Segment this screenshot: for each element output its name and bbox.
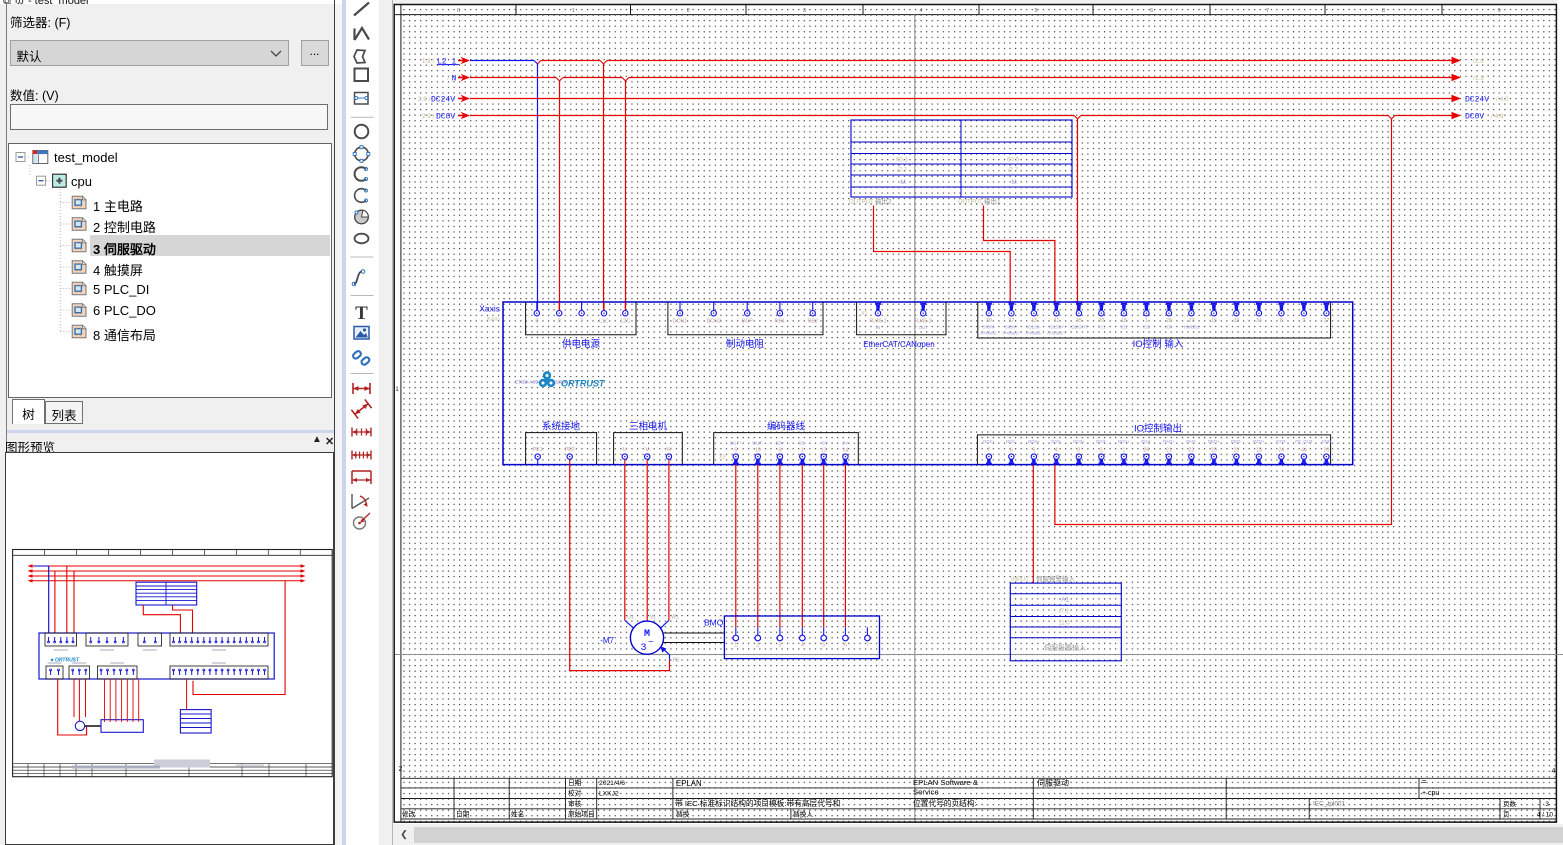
svg-text:3: 3 bbox=[640, 643, 646, 654]
svg-text:伺服报警输入: 伺服报警输入 bbox=[1044, 643, 1086, 652]
svg-text:L2C: L2C bbox=[620, 319, 630, 325]
svg-text:输出1: 输出1 bbox=[984, 197, 1001, 206]
svg-text:W1: W1 bbox=[671, 614, 679, 620]
svg-text:24: 24 bbox=[1278, 447, 1284, 453]
svg-text:2.9 /: 2.9 / bbox=[422, 113, 435, 120]
svg-text:9: 9 bbox=[558, 319, 561, 325]
svg-text:页: 页 bbox=[1503, 811, 1510, 819]
svg-text:/Probe1-: /Probe1- bbox=[1025, 331, 1042, 336]
svg-text:1: 1 bbox=[801, 447, 804, 453]
svg-text:DCN1: DCN1 bbox=[673, 319, 687, 325]
svg-text:U: U bbox=[623, 447, 627, 453]
svg-text:OUTPUT: OUTPUT bbox=[849, 200, 874, 206]
svg-text:OUT: OUT bbox=[918, 325, 928, 330]
svg-text:日期: 日期 bbox=[568, 779, 582, 787]
svg-text:三相电机: 三相电机 bbox=[629, 421, 668, 433]
svg-text:PE1: PE1 bbox=[533, 447, 543, 453]
svg-text:26: 26 bbox=[1143, 447, 1149, 453]
svg-text:原始项目: 原始项目 bbox=[568, 809, 595, 818]
svg-text:HWBB1: HWBB1 bbox=[1184, 325, 1200, 330]
svg-text:/1.9: /1.9 bbox=[1473, 58, 1484, 65]
svg-text:伺服驱动: 伺服驱动 bbox=[1037, 778, 1069, 788]
svg-text:/7.2: /7.2 bbox=[1059, 609, 1070, 615]
svg-text:5: 5 bbox=[734, 447, 737, 453]
svg-text:6: 6 bbox=[1150, 8, 1153, 14]
svg-text:Xaxis: Xaxis bbox=[487, 317, 501, 323]
svg-text:X3: X3 bbox=[719, 455, 726, 461]
svg-text:8: 8 bbox=[1280, 318, 1283, 324]
svg-text:13: 13 bbox=[821, 447, 827, 453]
svg-text:-M: -M bbox=[898, 179, 906, 186]
svg-text:9: 9 bbox=[1498, 8, 1501, 14]
svg-text:1: 1 bbox=[734, 643, 737, 649]
svg-text:60.1: 60.1 bbox=[896, 157, 908, 163]
svg-text:7: 7 bbox=[580, 319, 583, 325]
svg-text:IO2: IO2 bbox=[1120, 325, 1128, 330]
svg-text:3: 3 bbox=[1545, 801, 1549, 808]
svg-text:/7.7: /7.7 bbox=[897, 168, 908, 174]
svg-text:IOLS6-: IOLS6- bbox=[1027, 325, 1041, 330]
svg-text:27: 27 bbox=[1188, 318, 1194, 324]
svg-text:LXKJ2: LXKJ2 bbox=[599, 790, 619, 797]
svg-text:制动电阻: 制动电阻 bbox=[726, 338, 765, 350]
svg-text:35: 35 bbox=[1076, 318, 1082, 324]
svg-text:RB2: RB2 bbox=[808, 319, 818, 325]
svg-text:SION-: SION- bbox=[983, 325, 996, 330]
svg-text:4: 4 bbox=[919, 8, 922, 14]
svg-text:~: ~ bbox=[648, 638, 653, 648]
svg-text:IO3: IO3 bbox=[1143, 325, 1151, 330]
svg-text:6: 6 bbox=[1010, 447, 1013, 453]
svg-text:25: 25 bbox=[1211, 447, 1217, 453]
svg-text:IN: IN bbox=[876, 325, 881, 330]
svg-text:0: 0 bbox=[457, 8, 460, 14]
svg-text:RJ45-2: RJ45-2 bbox=[915, 319, 932, 325]
svg-text:8: 8 bbox=[1382, 8, 1385, 14]
svg-text:审核: 审核 bbox=[568, 799, 582, 808]
svg-text:34: 34 bbox=[1256, 318, 1262, 324]
svg-text:OUT+: OUT+ bbox=[730, 441, 743, 446]
svg-text:PBO+: PBO+ bbox=[1208, 439, 1220, 444]
svg-text:DO3+: DO3+ bbox=[1073, 439, 1085, 444]
svg-text:EPLAN Software &: EPLAN Software & bbox=[913, 778, 978, 787]
svg-text:14: 14 bbox=[842, 447, 848, 453]
svg-text:/ 4.8: / 4.8 bbox=[1491, 113, 1504, 120]
svg-text:-M: -M bbox=[1009, 179, 1017, 186]
svg-text:7: 7 bbox=[987, 447, 990, 453]
svg-text:替换: 替换 bbox=[676, 809, 690, 818]
svg-text:Service: Service bbox=[913, 788, 939, 797]
svg-text:/: / bbox=[447, 75, 449, 82]
svg-text:9: 9 bbox=[1302, 318, 1305, 324]
svg-text:7: 7 bbox=[866, 643, 869, 649]
svg-text:X1: X1 bbox=[861, 311, 868, 317]
svg-text:13: 13 bbox=[1256, 447, 1262, 453]
svg-text:IOLS6+: IOLS6+ bbox=[1049, 325, 1064, 330]
svg-text:EPLAN: EPLAN bbox=[676, 779, 702, 788]
svg-text:2021/4/6: 2021/4/6 bbox=[599, 780, 625, 787]
svg-text:23: 23 bbox=[1233, 447, 1239, 453]
svg-text:RJ45-1: RJ45-1 bbox=[869, 319, 886, 325]
svg-text:29: 29 bbox=[1323, 447, 1329, 453]
svg-text:8: 8 bbox=[535, 319, 538, 325]
svg-text:1: 1 bbox=[572, 8, 575, 14]
svg-text:INPUT: INPUT bbox=[1011, 577, 1029, 583]
svg-text:3: 3 bbox=[1077, 447, 1080, 453]
svg-text:供电电源: 供电电源 bbox=[562, 338, 601, 350]
svg-text:=: = bbox=[1422, 777, 1427, 786]
svg-text:PBO-: PBO- bbox=[1231, 439, 1242, 444]
svg-text:RB1: RB1 bbox=[775, 319, 785, 325]
svg-text:SD-: SD- bbox=[798, 441, 806, 446]
svg-text:60.0: 60.0 bbox=[1007, 157, 1019, 163]
svg-text:N: N bbox=[452, 75, 457, 84]
svg-text:5: 5 bbox=[822, 643, 825, 649]
svg-text:OUTPUT: OUTPUT bbox=[958, 200, 983, 206]
svg-text:/7.7: /7.7 bbox=[1008, 168, 1019, 174]
svg-text:SION+: SION+ bbox=[1005, 325, 1019, 330]
svg-text:U1: U1 bbox=[627, 614, 634, 620]
svg-text:4: 4 bbox=[1552, 768, 1556, 775]
svg-text:修改: 修改 bbox=[402, 809, 416, 818]
svg-text:2: 2 bbox=[399, 766, 403, 773]
svg-text:PZO+: PZO+ bbox=[1253, 439, 1265, 444]
svg-text:姓名: 姓名 bbox=[511, 809, 524, 818]
svg-text:页数: 页数 bbox=[1503, 799, 1517, 808]
svg-text:1: 1 bbox=[1145, 318, 1148, 324]
svg-text:22: 22 bbox=[1188, 447, 1194, 453]
svg-text:5: 5 bbox=[1032, 447, 1035, 453]
svg-text:SD+: SD+ bbox=[775, 441, 784, 446]
svg-text:V1: V1 bbox=[650, 614, 656, 620]
svg-text:17: 17 bbox=[1323, 318, 1329, 324]
svg-text:20: 20 bbox=[1098, 318, 1104, 324]
svg-text:替换人: 替换人 bbox=[793, 809, 813, 818]
svg-text:PAO+: PAO+ bbox=[1163, 439, 1175, 444]
svg-text:伺服报警输入: 伺服报警输入 bbox=[1036, 574, 1076, 583]
svg-text:IO4: IO4 bbox=[1165, 325, 1173, 330]
svg-text:/Probe1+: /Probe1+ bbox=[1047, 331, 1065, 336]
svg-text:Xaxis: Xaxis bbox=[479, 304, 500, 314]
svg-text:DO2-: DO2- bbox=[1051, 439, 1062, 444]
svg-text:4: 4 bbox=[801, 643, 804, 649]
svg-text:PAO-: PAO- bbox=[1186, 439, 1197, 444]
svg-text:PZO-: PZO- bbox=[1276, 439, 1287, 444]
svg-text:DCN2: DCN2 bbox=[706, 319, 720, 325]
svg-text:位置代号的页结构:: 位置代号的页结构: bbox=[913, 798, 977, 808]
svg-text:PZ_OUT: PZ_OUT bbox=[1295, 439, 1313, 444]
svg-text:2: 2 bbox=[756, 643, 759, 649]
svg-text:日期: 日期 bbox=[456, 810, 470, 818]
svg-text:DO1-: DO1- bbox=[1006, 439, 1017, 444]
svg-text:IOLIGHT: IOLIGHT bbox=[1070, 325, 1088, 330]
svg-text:3: 3 bbox=[778, 643, 781, 649]
svg-text:28: 28 bbox=[1166, 318, 1172, 324]
svg-text:15: 15 bbox=[1211, 318, 1217, 324]
svg-text:2.9 /: 2.9 / bbox=[418, 96, 431, 103]
svg-text:41: 41 bbox=[1053, 318, 1059, 324]
svg-text:L1C: L1C bbox=[599, 319, 609, 325]
svg-text:DO2+: DO2+ bbox=[1028, 439, 1040, 444]
svg-text:39: 39 bbox=[986, 318, 992, 324]
svg-text:6: 6 bbox=[844, 643, 847, 649]
svg-text:-M7: -M7 bbox=[600, 636, 614, 645]
svg-text:IO控制输出: IO控制输出 bbox=[1134, 423, 1182, 435]
svg-text:7: 7 bbox=[1266, 8, 1269, 14]
svg-text:DC0V: DC0V bbox=[1465, 113, 1484, 122]
svg-text:GND: GND bbox=[1322, 439, 1332, 444]
svg-text:/ 4.0: / 4.0 bbox=[1496, 96, 1509, 103]
svg-text:+5V: +5V bbox=[820, 441, 829, 446]
svg-text:/Probe2-: /Probe2- bbox=[980, 331, 997, 336]
svg-text:1: 1 bbox=[1122, 447, 1125, 453]
svg-text:IEC_tpl001: IEC_tpl001 bbox=[1313, 801, 1346, 808]
svg-text:PE2: PE2 bbox=[565, 447, 575, 453]
svg-text:DO3-: DO3- bbox=[1096, 439, 1107, 444]
svg-text:/Probe2+: /Probe2+ bbox=[1002, 331, 1020, 336]
svg-text:4 / 10: 4 / 10 bbox=[1537, 812, 1554, 819]
svg-text:DC0V: DC0V bbox=[436, 113, 455, 122]
svg-text:10: 10 bbox=[755, 447, 761, 453]
svg-text:3: 3 bbox=[803, 8, 806, 14]
svg-text:33: 33 bbox=[1233, 318, 1239, 324]
svg-text:4: 4 bbox=[1055, 447, 1058, 453]
svg-text:2: 2 bbox=[687, 8, 690, 14]
svg-text:DC24V: DC24V bbox=[1465, 96, 1489, 105]
svg-text:W: W bbox=[666, 447, 671, 453]
svg-text:18: 18 bbox=[1121, 318, 1127, 324]
svg-text:-A1: -A1 bbox=[1059, 597, 1070, 604]
svg-text:2: 2 bbox=[1100, 447, 1103, 453]
svg-text:带 IEC 标准标识结构的项目模板:带有高层代号和: 带 IEC 标准标识结构的项目模板:带有高层代号和 bbox=[675, 798, 840, 808]
svg-text:37: 37 bbox=[1008, 318, 1014, 324]
svg-text:V: V bbox=[645, 447, 649, 453]
svg-text:6: 6 bbox=[778, 447, 781, 453]
svg-text:44: 44 bbox=[1301, 447, 1307, 453]
svg-text:编码器线: 编码器线 bbox=[767, 421, 806, 433]
svg-text:1: 1 bbox=[395, 386, 399, 393]
svg-text:1.8 /: 1.8 / bbox=[422, 58, 435, 65]
svg-text:OUT-: OUT- bbox=[752, 441, 763, 446]
svg-text:IO控制 输入: IO控制 输入 bbox=[1133, 338, 1184, 350]
svg-text:DCP: DCP bbox=[742, 319, 754, 325]
svg-text:DO1+: DO1+ bbox=[983, 439, 995, 444]
svg-text:DO4+: DO4+ bbox=[1118, 439, 1130, 444]
svg-text:EtherCAT/CANopen: EtherCAT/CANopen bbox=[863, 340, 934, 349]
svg-text:校对: 校对 bbox=[568, 788, 582, 797]
svg-text:+ cpu: + cpu bbox=[1422, 790, 1439, 797]
svg-text:DC24V: DC24V bbox=[431, 96, 455, 105]
svg-text:43: 43 bbox=[1031, 318, 1037, 324]
svg-text:PE: PE bbox=[673, 658, 680, 664]
svg-text:11.0: 11.0 bbox=[1058, 620, 1070, 626]
svg-text:输出2: 输出2 bbox=[875, 197, 892, 206]
svg-text:DO4-: DO4- bbox=[1141, 439, 1152, 444]
svg-text:21: 21 bbox=[1166, 447, 1172, 453]
svg-text:X?1: X?1 bbox=[1097, 325, 1105, 330]
svg-text:0V: 0V bbox=[843, 441, 850, 446]
svg-text:BMQ: BMQ bbox=[704, 618, 724, 628]
svg-text:系统接地: 系统接地 bbox=[542, 421, 581, 433]
svg-text:/1.9: /1.9 bbox=[1473, 75, 1484, 82]
svg-text:5: 5 bbox=[1034, 8, 1037, 14]
svg-text:ORTRUST: ORTRUST bbox=[561, 379, 606, 389]
